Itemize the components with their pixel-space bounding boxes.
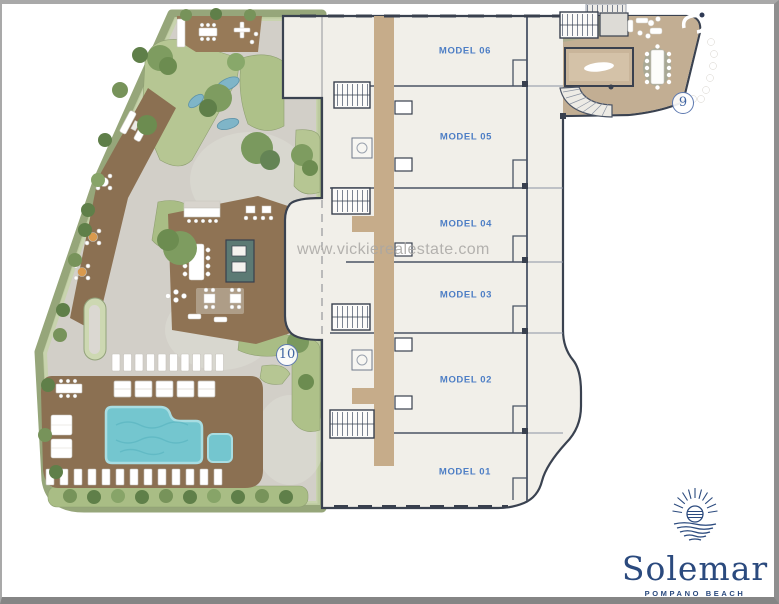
logo-subtitle: POMPANO BEACH — [610, 589, 779, 598]
unit-label-model-02: MODEL 02 — [440, 375, 492, 386]
unit-label-model-05: MODEL 05 — [440, 132, 492, 143]
watermark-text: www.vickierealestate.com — [297, 241, 490, 259]
gallery-room — [565, 48, 633, 86]
logo-name: Solemar — [610, 552, 779, 585]
wing-stairs — [560, 12, 598, 38]
unit-label-model-06: MODEL 06 — [439, 46, 491, 57]
unit-label-model-03: MODEL 03 — [440, 290, 492, 301]
spa — [208, 434, 232, 462]
solemar-sun-icon — [668, 486, 722, 548]
solemar-logo: Solemar POMPANO BEACH — [610, 486, 779, 598]
unit-label-model-01: MODEL 01 — [439, 467, 491, 478]
top-deck — [177, 16, 262, 52]
cabana-row — [114, 381, 215, 397]
marker-badge-10: 10 — [276, 344, 298, 366]
left-planter — [84, 298, 106, 360]
unit-label-model-04: MODEL 04 — [440, 219, 492, 230]
marker-badge-9: 9 — [672, 92, 694, 114]
floorplan-canvas: MODEL 06 MODEL 05 MODEL 04 MODEL 03 MODE… — [0, 0, 779, 604]
